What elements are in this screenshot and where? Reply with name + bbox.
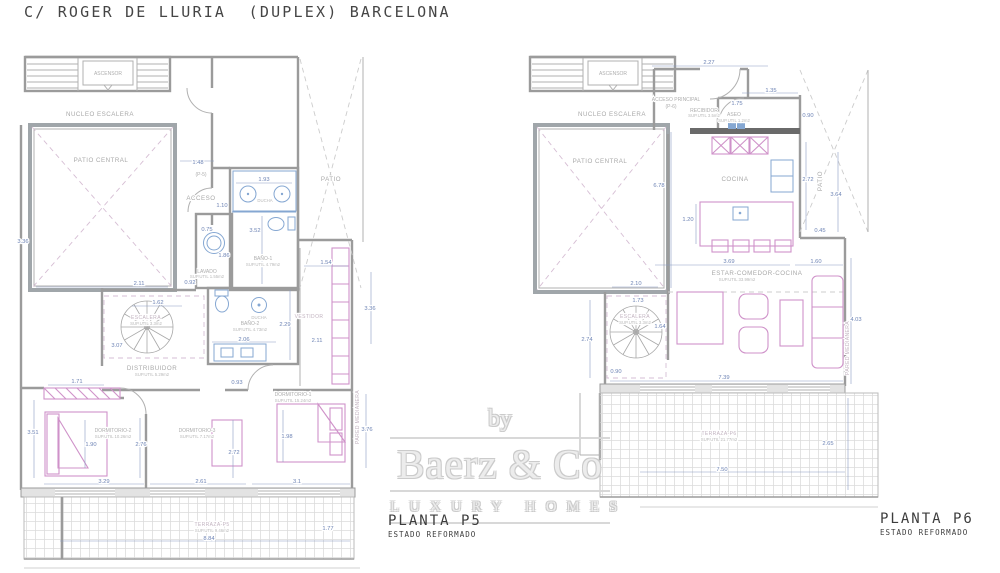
dim: 1.71 <box>71 379 82 385</box>
terrace-p5 <box>24 497 360 568</box>
dim: 0.93 <box>231 380 242 386</box>
label-ascensor-p6: ASCENSOR <box>599 71 627 77</box>
label-distribuidor-sup: SUP.UTIL 5.29m2 <box>135 372 170 377</box>
dim: 3.36 <box>364 306 375 312</box>
dim: 7.50 <box>716 467 727 473</box>
dim: 3.29 <box>98 479 109 485</box>
patio-central-p6 <box>535 125 668 292</box>
dim: 3.69 <box>723 259 734 265</box>
dim: 2.74 <box>581 337 593 343</box>
label-patio-strip-p6: PATIO <box>817 171 824 191</box>
dim: 7.39 <box>718 375 729 381</box>
dim: 2.11 <box>312 338 323 344</box>
blueprint-canvas: C/ ROGER DE LLURIA (DUPLEX) BARCELONA <box>0 0 1000 573</box>
dim: 2.10 <box>630 281 641 287</box>
label-terraza-p5-sup: SUP.UTIL 9.46m2 <box>195 528 230 533</box>
label-ascensor-p5: ASCENSOR <box>94 71 122 77</box>
label-vestidor: VESTIDOR <box>295 314 324 320</box>
dim: 1.90 <box>85 442 96 448</box>
dim: 0.90 <box>610 369 621 375</box>
label-p5-ref: (P-5) <box>195 172 206 178</box>
label-lavado-sup: SUP.UTIL 1.55m2 <box>190 274 225 279</box>
label-patio-strip-p5: PATIO <box>321 176 341 183</box>
label-acceso: ACCESO <box>186 195 215 202</box>
dim: 2.61 <box>195 479 206 485</box>
label-cocina: COCINA <box>721 176 748 183</box>
label-patio-central-p5: PATIO CENTRAL <box>74 157 129 164</box>
label-estar-sup: SUP.UTIL 33.99m2 <box>719 277 756 282</box>
label-bano1: BAÑO-1 <box>254 255 273 262</box>
label-ducha2: DUCHA <box>251 315 266 320</box>
label-pared-p5: PARED MEDIANERA <box>355 390 361 444</box>
dim: 1.98 <box>281 434 292 440</box>
plan-p5: ASCENSOR NUCLEO ESCALERA PATIO CENTRAL 2… <box>17 57 375 568</box>
label-dorm3-sup: SUP.UTIL 7.17m2 <box>180 434 215 439</box>
windows-p5 <box>55 489 340 496</box>
dim: 2.11 <box>134 281 145 287</box>
dim: 2.76 <box>135 442 146 448</box>
watermark: by Baerz & Co LUXURY HOMES <box>390 406 610 526</box>
label-nucleo-p5: NUCLEO ESCALERA <box>66 111 134 118</box>
label-recibidor-sup: SUP.UTIL 3.5m2 <box>688 113 720 118</box>
living-furniture-p6 <box>677 276 843 368</box>
dim: 1.54 <box>320 260 332 266</box>
dim: 4.03 <box>850 317 861 323</box>
label-bano2: BAÑO-2 <box>241 320 260 327</box>
plan-p5-title: PLANTA P5 ESTADO REFORMADO <box>388 513 482 539</box>
watermark-brand: Baerz & Co <box>390 441 610 488</box>
dim: 8.84 <box>203 536 215 542</box>
dim: 2.29 <box>279 322 290 328</box>
dim: 2.65 <box>822 441 833 447</box>
label-estar: ESTAR-COMEDOR-COCINA <box>712 270 803 277</box>
dim: 1.60 <box>810 259 821 265</box>
watermark-rule <box>390 490 610 492</box>
label-ducha1: DUCHA <box>257 198 272 203</box>
dim: 0.75 <box>201 227 212 233</box>
dim: 1.48 <box>192 160 203 166</box>
dim: 2.72 <box>228 450 239 456</box>
dim: 1.64 <box>654 324 666 330</box>
watermark-by: by <box>390 406 610 433</box>
plan-p5-status: ESTADO REFORMADO <box>388 530 482 539</box>
watermark-rule <box>390 437 610 439</box>
dim: 1.73 <box>632 298 643 304</box>
label-bano1-sup: SUP.UTIL 4.79m2 <box>246 262 281 267</box>
dim: 1.62 <box>152 300 163 306</box>
dim: 3.52 <box>249 228 260 234</box>
kitchen-p6 <box>700 137 793 252</box>
label-dorm2-sup: SUP.UTIL 10.26m2 <box>95 434 132 439</box>
dim: 0.90 <box>802 113 813 119</box>
dim: 2.72 <box>802 177 813 183</box>
dim: 3.07 <box>111 343 122 349</box>
label-pared-p6: PARED MEDIANERA <box>845 321 851 375</box>
hob-p6 <box>728 123 736 129</box>
label-terraza-p6-sup: SUP.UTIL 21.77m2 <box>701 437 738 442</box>
dim: 3.36 <box>17 239 28 245</box>
plan-p6-title: PLANTA P6 ESTADO REFORMADO <box>880 511 974 537</box>
dim: 3.1 <box>293 479 301 485</box>
dim: 1.20 <box>682 217 693 223</box>
dim: 2.06 <box>238 337 249 343</box>
label-dorm1-sup: SUP.UTIL 15.24m2 <box>275 398 312 403</box>
label-nucleo-p6: NUCLEO ESCALERA <box>578 111 646 118</box>
dim: 1.75 <box>731 101 742 107</box>
dim: 0.92 <box>184 280 195 286</box>
dim: 2.27 <box>703 60 714 66</box>
dim: 3.64 <box>830 192 842 198</box>
dim: 0.45 <box>814 228 825 234</box>
label-distribuidor: DISTRIBUIDOR <box>127 365 177 372</box>
label-p6-ref: (P-6) <box>665 104 676 110</box>
plan-p6-name: PLANTA P6 <box>880 511 974 527</box>
spiral-stair-p5 <box>121 301 173 353</box>
drawing-title: C/ ROGER DE LLURIA (DUPLEX) BARCELONA <box>24 3 451 21</box>
patio-central-p5 <box>30 125 175 290</box>
dim: 1.93 <box>258 177 269 183</box>
stair-zone-p6 <box>607 296 666 378</box>
label-acceso-principal: ACCESO PRINCIPAL <box>652 97 701 103</box>
label-escalera-sup-p5: SUP.UTIL 3.3m2 <box>130 321 162 326</box>
label-bano2-sup: SUP.UTIL 4.73m2 <box>233 327 268 332</box>
terrace-p6 <box>580 393 878 507</box>
dim: 3.51 <box>27 430 38 436</box>
patio-strip-p6 <box>800 70 868 232</box>
hob-p6 <box>737 123 745 129</box>
windows-p6 <box>640 385 830 392</box>
dim: 1.35 <box>765 88 776 94</box>
patio-strip-p5 <box>300 59 361 288</box>
plan-p5-name: PLANTA P5 <box>388 513 482 529</box>
label-patio-central-p6: PATIO CENTRAL <box>573 158 628 165</box>
dim: 1.77 <box>322 526 333 532</box>
dim: 3.76 <box>361 427 372 433</box>
plan-p6-status: ESTADO REFORMADO <box>880 528 974 537</box>
label-aseo-sup: SUP.UTIL 1.2m2 <box>718 118 750 123</box>
dim: 1.10 <box>216 203 227 209</box>
label-escalera-sup-p6: SUP.UTIL 3.3m2 <box>619 320 651 325</box>
dim: 6.78 <box>653 183 664 189</box>
dim: 1.86 <box>218 253 229 259</box>
